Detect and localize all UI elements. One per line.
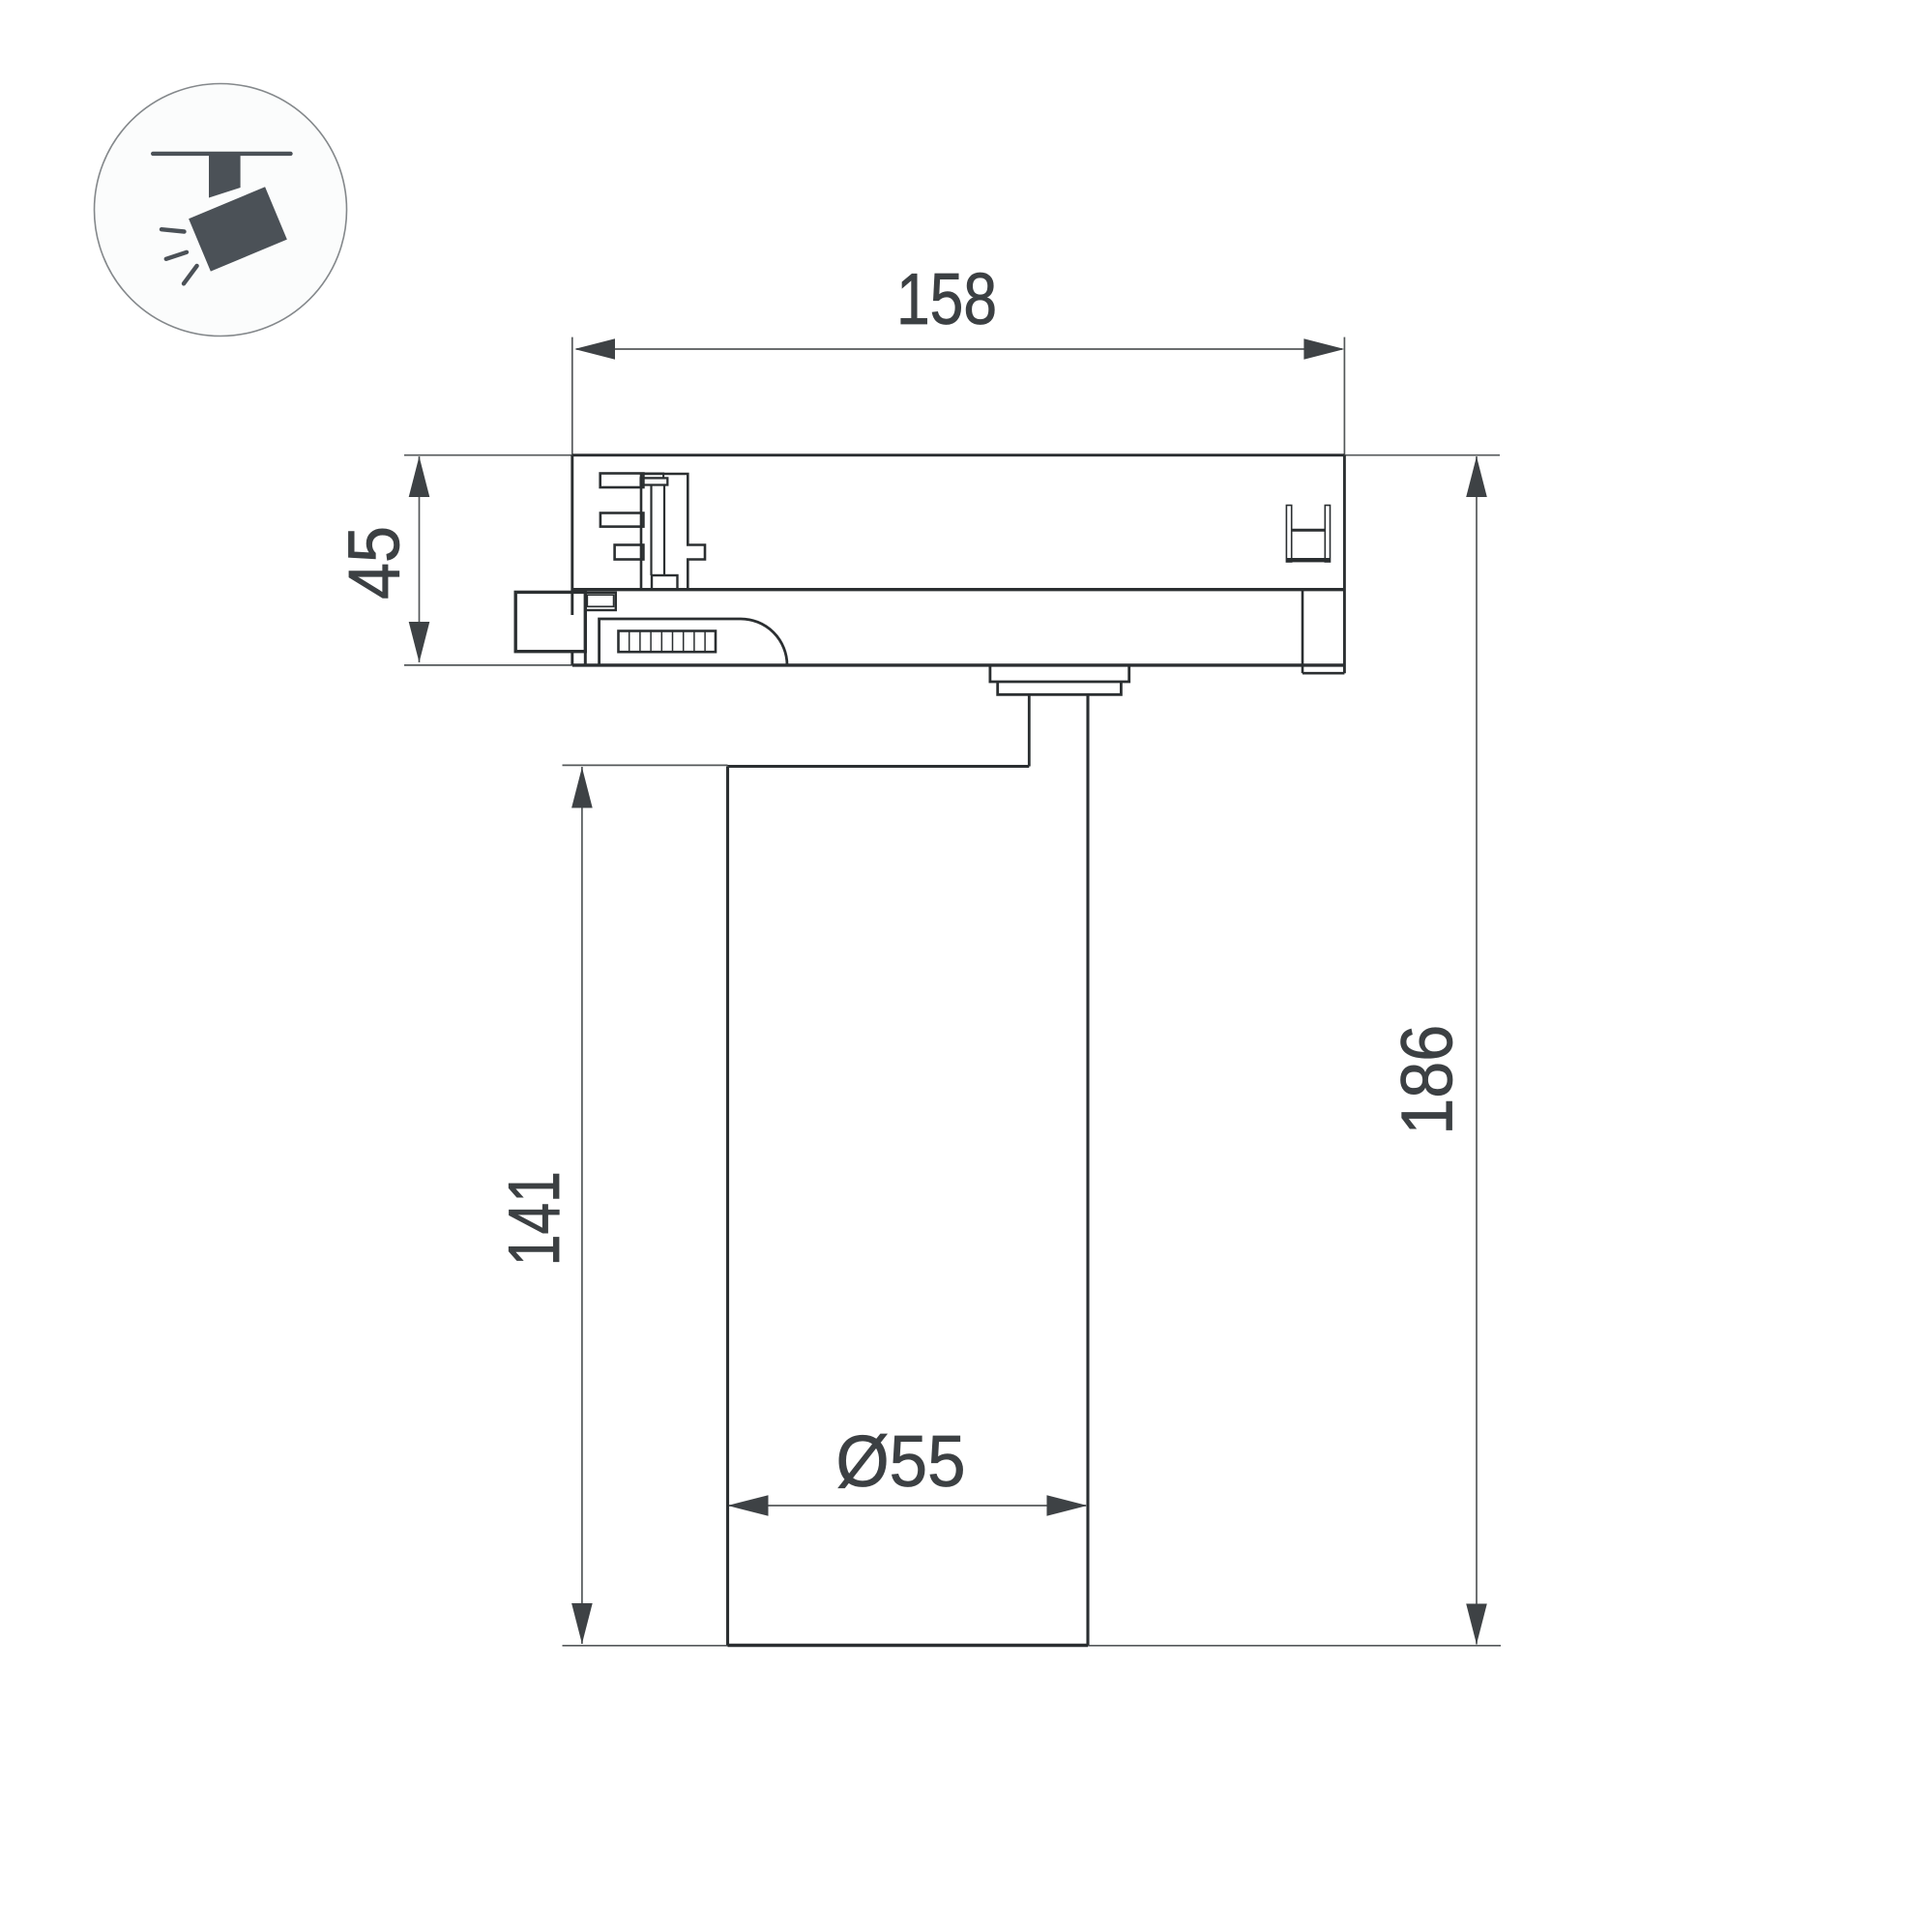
svg-text:186: 186 [1387, 1025, 1468, 1135]
svg-text:Ø55: Ø55 [836, 1420, 966, 1502]
svg-text:45: 45 [333, 526, 414, 600]
svg-text:158: 158 [896, 258, 997, 339]
svg-text:141: 141 [493, 1171, 574, 1266]
